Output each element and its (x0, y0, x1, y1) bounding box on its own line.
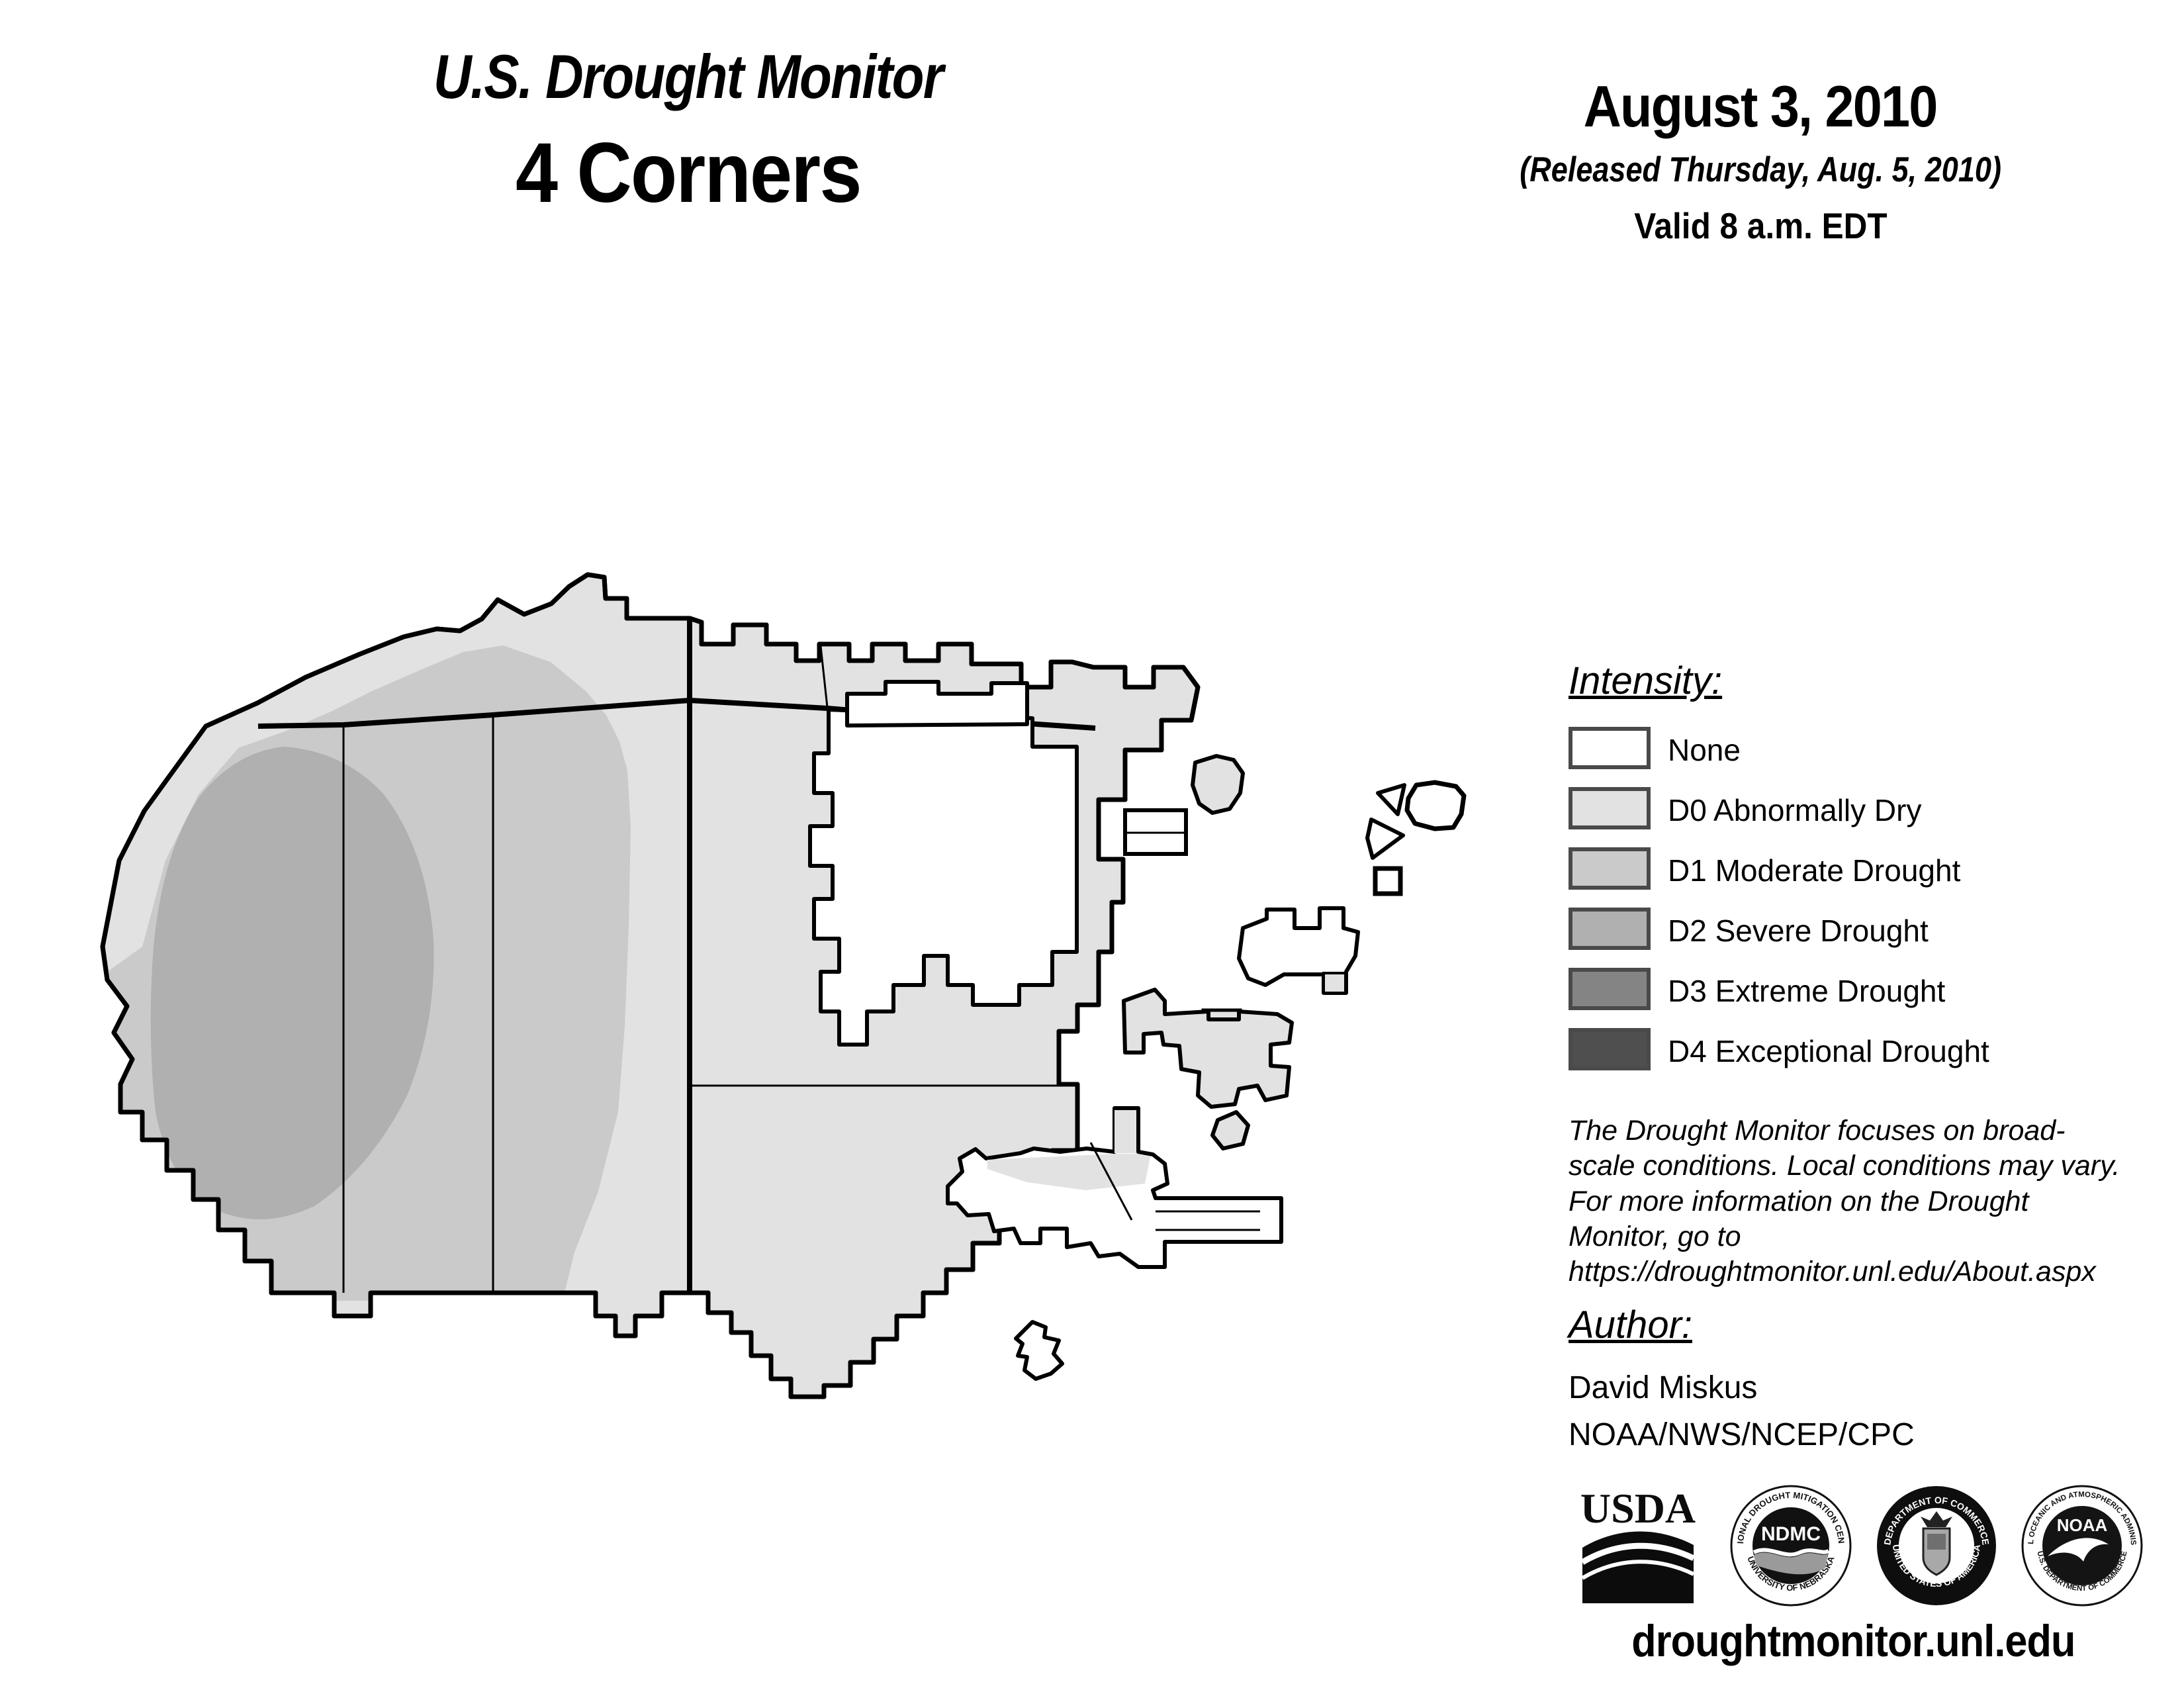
legend-label: None (1668, 732, 1741, 768)
legend-label: D2 Severe Drought (1668, 913, 1929, 949)
island-d0-pentagon (1212, 1112, 1248, 1149)
legend-label: D0 Abnormally Dry (1668, 792, 1921, 828)
legend-label: D4 Exceptional Drought (1668, 1033, 1989, 1069)
site-url: droughtmonitor.unl.edu (1542, 1615, 2164, 1667)
island-d0-peninsula (1193, 756, 1243, 813)
island-pentagon (1407, 782, 1464, 829)
ndmc-logo-text: NDMC (1761, 1523, 1821, 1545)
legend-label: D1 Moderate Drought (1668, 853, 1960, 888)
legend-heading: Intensity: (1569, 659, 2164, 703)
island-square (1375, 868, 1400, 894)
legend-label: D3 Extreme Drought (1668, 973, 1945, 1009)
logos-row: USDA NATIONAL DROUGHT MITIGATION CENTER … (1578, 1484, 2174, 1610)
island-cluster-d0-corner (1324, 973, 1345, 993)
none-swatch (1569, 727, 1651, 769)
island-d0-cluster (1124, 990, 1292, 1107)
island-arrow (1367, 820, 1403, 858)
drought-monitor-report: U.S. Drought Monitor 4 Corners August 3,… (0, 0, 2184, 1688)
author-heading: Author: (1569, 1303, 2164, 1347)
commerce-seal-logo: DEPARTMENT OF COMMERCE UNITED STATES OF … (1875, 1484, 1998, 1607)
site-url-text: droughtmonitor.unl.edu (1631, 1615, 2075, 1667)
legend: Intensity: None D0 Abnormally Dry D1 Mod… (1569, 659, 2164, 1109)
island-white-blob (1016, 1322, 1062, 1379)
usda-logo: USDA (1578, 1484, 1698, 1607)
island-white-rect (1125, 810, 1186, 854)
disclaimer-text: The Drought Monitor focuses on broad-sca… (1569, 1113, 2124, 1290)
noaa-logo: NATIONAL OCEANIC AND ATMOSPHERIC ADMINIS… (2021, 1484, 2144, 1607)
usda-logo-text: USDA (1580, 1485, 1696, 1532)
noaa-logo-text: NOAA (2057, 1515, 2108, 1535)
author-name: David Miskus (1569, 1370, 2164, 1406)
author-block: Author: David Miskus NOAA/NWS/NCEP/CPC (1569, 1303, 2164, 1453)
d1-swatch (1569, 847, 1651, 890)
island-triangle (1378, 785, 1404, 814)
ndmc-logo: NATIONAL DROUGHT MITIGATION CENTER UNIVE… (1729, 1484, 1852, 1607)
d4-swatch (1569, 1028, 1651, 1070)
author-affiliation: NOAA/NWS/NCEP/CPC (1569, 1417, 2164, 1453)
d2-swatch (1569, 908, 1651, 950)
d3-swatch (1569, 968, 1651, 1010)
d0-swatch (1569, 787, 1651, 829)
